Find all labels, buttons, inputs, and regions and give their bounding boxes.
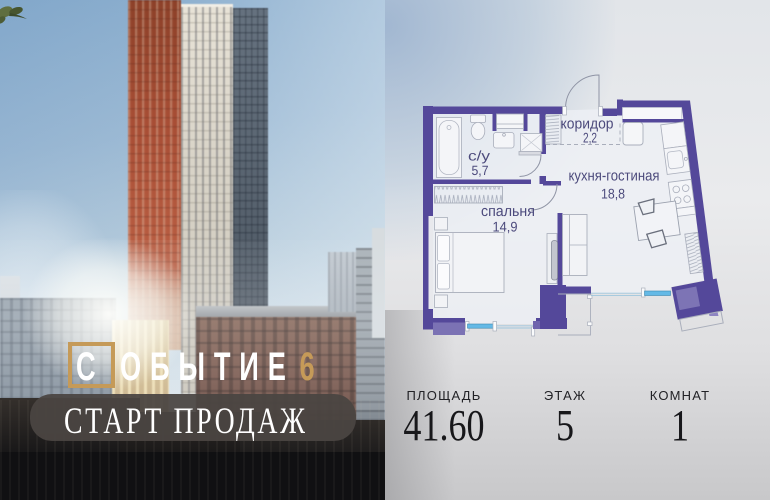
svg-text:2,2: 2,2: [583, 130, 597, 146]
svg-text:5,7: 5,7: [472, 163, 489, 178]
svg-text:14,9: 14,9: [492, 218, 517, 234]
svg-text:кухня-гостиная: кухня-гостиная: [569, 167, 660, 184]
svg-text:18,8: 18,8: [601, 186, 625, 202]
svg-text:с/у: с/у: [468, 147, 490, 163]
svg-text:спальня: спальня: [481, 203, 535, 220]
